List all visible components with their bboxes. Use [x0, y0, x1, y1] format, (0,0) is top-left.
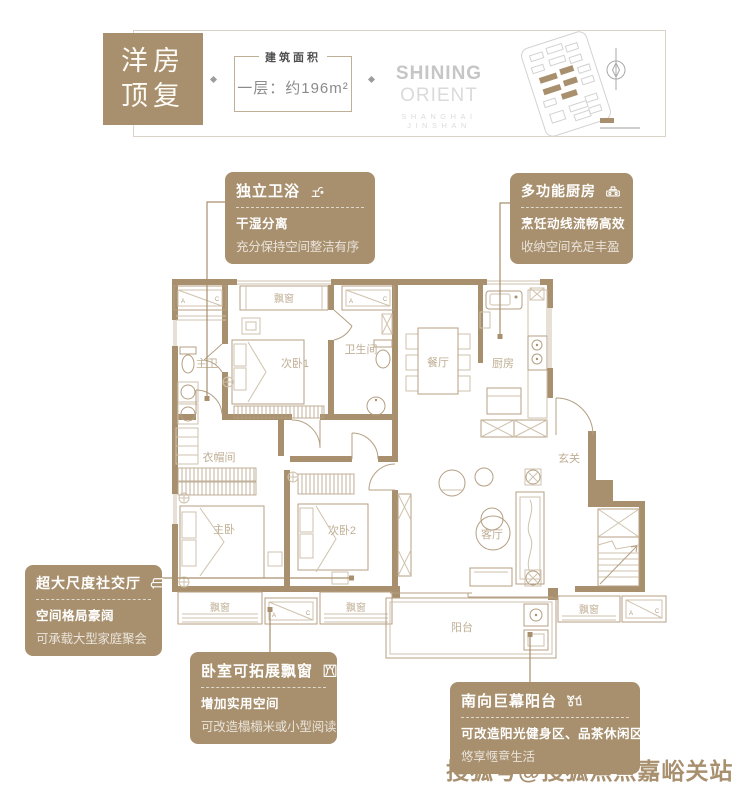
callout-baywindow-line1: 增加实用空间: [201, 693, 326, 712]
ac-label-c: C: [215, 297, 220, 303]
bay-window-label: 飘窗: [210, 601, 230, 614]
callout-separator: [521, 207, 622, 208]
master-bedroom-furniture: [179, 493, 282, 587]
ac-label-a: A: [349, 299, 353, 305]
callout-baywindow-line2: 可改造榻榻米或小型阅读角: [201, 716, 326, 735]
callout-separator: [236, 207, 364, 208]
callout-bath: 独立卫浴 干湿分离 充分保持空间整洁有序: [225, 172, 375, 264]
watermark: 搜狐号@搜狐焦点嘉峪关站: [446, 752, 733, 786]
room-label-dining: 餐厅: [427, 355, 449, 369]
callout-bath-line2: 充分保持空间整洁有序: [236, 236, 364, 255]
entry-door: [556, 398, 593, 435]
callout-kitchen-title: 多功能厨房: [521, 181, 596, 201]
callout-baywindow: 卧室可拓展飘窗 增加实用空间 可改造榻榻米或小型阅读角: [190, 652, 337, 744]
callout-separator: [201, 687, 326, 688]
stairs: [598, 509, 639, 586]
callout-separator: [36, 599, 151, 600]
callout-kitchen-line2: 收纳空间充足丰盈: [521, 236, 622, 255]
ac-label-a: A: [629, 611, 633, 617]
callout-social-line2: 可承载大型家庭聚会: [36, 628, 151, 647]
stove-icon: [604, 182, 622, 200]
room-label-master-bedroom: 主卧: [213, 523, 235, 536]
ac-platform-bottomright: [622, 596, 666, 622]
room-label-foyer: 玄关: [558, 451, 580, 465]
walls: [172, 279, 645, 600]
room-label-bedroom2: 次卧2: [328, 523, 356, 537]
ac-label-c: C: [383, 297, 388, 303]
ac-label-c: C: [655, 609, 660, 615]
room-label-bathroom: 卫生间: [345, 342, 378, 356]
ac-label-c: C: [306, 611, 311, 617]
callout-social-line1: 空间格局豪阔: [36, 605, 151, 624]
bay-window-label: 飘窗: [579, 603, 599, 616]
master-bath-fixtures: [178, 344, 228, 424]
room-label-cloakroom: 衣帽间: [203, 450, 236, 464]
sofa-icon: [149, 574, 168, 593]
callout-balcony-title: 南向巨幕阳台: [461, 690, 557, 711]
room-label-living: 客厅: [481, 527, 503, 541]
faucet-icon: [308, 182, 326, 200]
room-label-kitchen: 厨房: [492, 357, 514, 370]
callout-balcony-line1: 可改造阳光健身区、品茶休闲区: [461, 723, 629, 742]
bedroom2-furniture: [288, 464, 395, 584]
room-label-balcony: 阳台: [451, 620, 473, 634]
living-room-furniture: [398, 468, 544, 586]
room-label-bedroom1: 次卧1: [281, 356, 309, 370]
ac-label-a: A: [272, 613, 276, 619]
bay-window-icon: [321, 662, 339, 680]
callout-baywindow-title: 卧室可拓展飘窗: [201, 660, 313, 681]
bay-window-label: 飘窗: [346, 601, 366, 614]
callout-kitchen: 多功能厨房 烹饪动线流畅高效 收纳空间充足丰盈: [510, 173, 633, 264]
callout-social-title: 超大尺度社交厅: [36, 573, 141, 593]
callout-social: 超大尺度社交厅 空间格局豪阔 可承载大型家庭聚会: [25, 565, 162, 656]
callout-bath-title: 独立卫浴: [236, 180, 300, 201]
bay-window-label: 飘窗: [274, 292, 294, 305]
ac-label-a: A: [181, 299, 185, 305]
callout-separator: [461, 717, 629, 718]
plant-icon: [565, 691, 584, 710]
callout-kitchen-line1: 烹饪动线流畅高效: [521, 213, 622, 232]
callout-bath-line1: 干湿分离: [236, 213, 364, 232]
bathroom-fixtures: [328, 310, 392, 415]
floor-plan: 主卫 次卧1 卫生间 餐厅 厨房 衣帽间 玄关 主卧 次卧2 客厅 阳台 飘窗 …: [0, 0, 742, 787]
